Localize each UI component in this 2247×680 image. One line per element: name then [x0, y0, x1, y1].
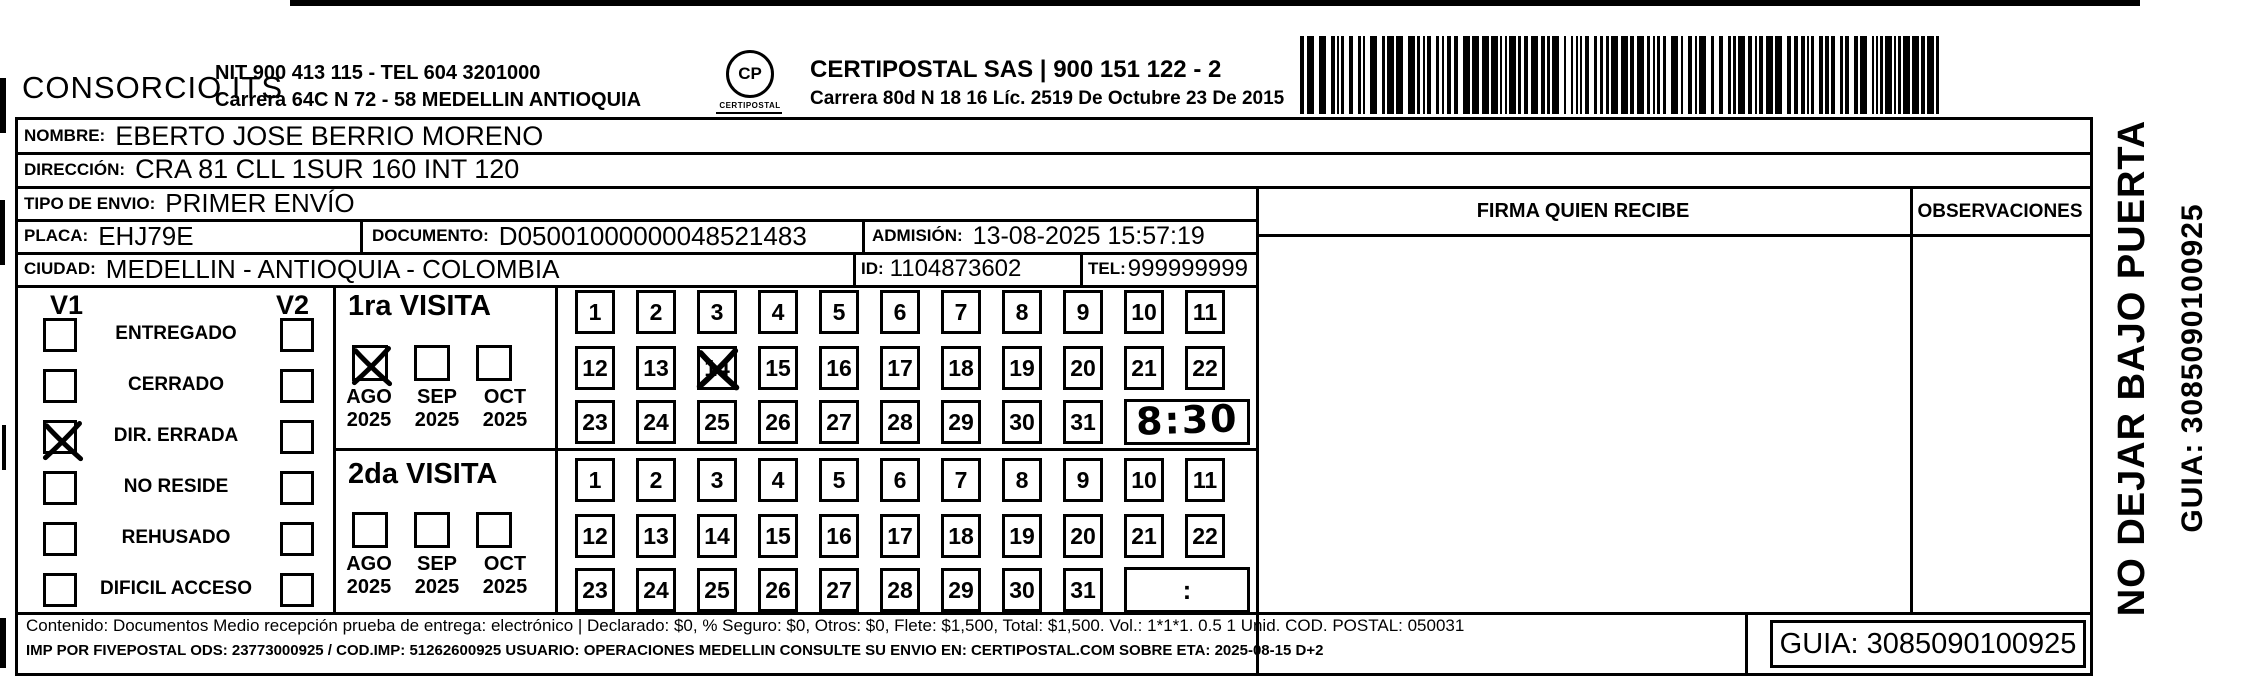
visit1-time-box: 8:30	[1124, 399, 1250, 445]
day-cell-28: 28	[880, 400, 920, 444]
v1-checkbox	[43, 573, 77, 607]
day-cell-22: 22	[1185, 514, 1225, 558]
time-colon: :	[1183, 575, 1192, 606]
grid-line	[18, 285, 1256, 288]
ciudad-label: CIUDAD:	[24, 259, 96, 279]
day-cell-12: 12	[575, 514, 615, 558]
day-cell-3: 3	[697, 458, 737, 502]
month-checkbox-sep	[414, 512, 450, 548]
month-label: AGO	[340, 553, 398, 576]
admision-value: 13-08-2025 15:57:19	[973, 222, 1205, 251]
status-label: DIR. ERRADA	[76, 420, 276, 452]
day-cell-17: 17	[880, 514, 920, 558]
day-cell-9: 9	[1063, 290, 1103, 334]
day-cell-10: 10	[1124, 290, 1164, 334]
day-cell-2: 2	[636, 458, 676, 502]
visit2-time-box: :	[1124, 567, 1250, 613]
certipostal-block: CERTIPOSTAL SAS | 900 151 122 - 2 Carrer…	[810, 56, 1284, 110]
placa-value: EHJ79E	[98, 221, 193, 252]
tel-label: TEL:	[1088, 259, 1126, 279]
day-cell-8: 8	[1002, 458, 1042, 502]
grid-line	[1080, 252, 1083, 285]
v1-checkbox	[43, 369, 77, 403]
month-checkbox-ago	[352, 512, 388, 548]
logo-tagline-line	[716, 112, 782, 114]
scanned-waybill: CONSORCIO ITS NIT 900 413 115 - TEL 604 …	[0, 0, 2247, 680]
handwritten-time: 8:30	[1135, 396, 1239, 444]
barcode	[1300, 36, 1948, 114]
footer-imp-line: IMP POR FIVEPOSTAL ODS: 23773000925 / CO…	[26, 642, 1323, 659]
grid-line	[1745, 612, 1748, 673]
scan-artifact	[0, 618, 6, 668]
status-label: DIFICIL ACCESO	[76, 573, 276, 605]
month-year: 2025	[408, 576, 466, 599]
v1-checkbox	[43, 420, 77, 454]
id-value: 1104873602	[890, 255, 1022, 283]
side-rotated-text: NO DEJAR BAJO PUERTA GUIA: 3085090100925	[2100, 113, 2230, 623]
visit2-month-checkboxes	[352, 512, 512, 548]
day-cell-4: 4	[758, 458, 798, 502]
nombre-label: NOMBRE:	[24, 126, 105, 146]
grid-line	[333, 285, 336, 612]
scan-artifact	[2, 425, 6, 470]
day-cell-19: 19	[1002, 514, 1042, 558]
day-cell-19: 19	[1002, 346, 1042, 390]
nombre-value: EBERTO JOSE BERRIO MORENO	[115, 121, 543, 152]
placa-label: PLACA:	[24, 226, 88, 246]
month-label: OCT	[476, 553, 534, 576]
form-box: NOMBRE: EBERTO JOSE BERRIO MORENO DIRECC…	[15, 117, 2093, 676]
visit2-month-labels: AGOSEPOCT	[340, 553, 534, 576]
day-cell-12: 12	[575, 346, 615, 390]
status-row-no-reside: NO RESIDE	[18, 471, 333, 505]
v2-checkbox	[280, 471, 314, 505]
day-row: 232425262728293031:	[575, 568, 1250, 613]
v2-checkbox	[280, 420, 314, 454]
day-cell-9: 9	[1063, 458, 1103, 502]
tel-cell: TEL: 999999999	[1088, 253, 1248, 285]
certipostal-name: CERTIPOSTAL SAS | 900 151 122 - 2	[810, 56, 1284, 84]
handwritten-x-mark	[350, 343, 394, 387]
status-row-dificil-acceso: DIFICIL ACCESO	[18, 573, 333, 607]
day-cell-26: 26	[758, 568, 798, 612]
tipo-envio-row: TIPO DE ENVIO: PRIMER ENVÍO	[24, 188, 355, 219]
day-row: 2324252627282930318:30	[575, 400, 1250, 445]
day-cell-6: 6	[880, 290, 920, 334]
v1-checkbox	[43, 318, 77, 352]
day-cell-5: 5	[819, 290, 859, 334]
v1-checkbox	[43, 522, 77, 556]
v2-checkbox	[280, 318, 314, 352]
day-cell-18: 18	[941, 346, 981, 390]
day-cell-8: 8	[1002, 290, 1042, 334]
grid-line	[1910, 189, 1913, 612]
day-row: 1213141516171819202122	[575, 514, 1225, 558]
grid-line	[862, 219, 865, 252]
grid-line	[555, 285, 558, 612]
visit1-title: 1ra VISITA	[348, 290, 491, 323]
day-cell-2: 2	[636, 290, 676, 334]
day-cell-15: 15	[758, 514, 798, 558]
day-cell-24: 24	[636, 568, 676, 612]
scan-artifact	[0, 78, 6, 133]
month-checkbox-sep	[414, 345, 450, 381]
day-cell-27: 27	[819, 568, 859, 612]
grid-line	[853, 252, 856, 285]
admision-cell: ADMISIÓN: 13-08-2025 15:57:19	[872, 220, 1205, 252]
documento-cell: DOCUMENTO: D05001000000048521483	[372, 220, 807, 252]
day-cell-16: 16	[819, 346, 859, 390]
day-cell-24: 24	[636, 400, 676, 444]
status-row-dir-errada: DIR. ERRADA	[18, 420, 333, 454]
month-label: SEP	[408, 553, 466, 576]
certipostal-address: Carrera 80d N 18 16 Líc. 2519 De Octubre…	[810, 88, 1284, 110]
day-cell-13: 13	[636, 346, 676, 390]
company-address-line: Carrera 64C N 72 - 58 MEDELLIN ANTIOQUIA	[215, 87, 641, 114]
day-cell-21: 21	[1124, 346, 1164, 390]
day-cell-29: 29	[941, 400, 981, 444]
status-row-cerrado: CERRADO	[18, 369, 333, 403]
v2-column-header: V2	[276, 290, 309, 321]
month-year: 2025	[476, 576, 534, 599]
status-label: CERRADO	[76, 369, 276, 401]
handwritten-x-mark	[695, 343, 741, 393]
tel-value: 999999999	[1128, 255, 1248, 283]
day-cell-11: 11	[1185, 290, 1225, 334]
day-cell-23: 23	[575, 568, 615, 612]
day-cell-7: 7	[941, 290, 981, 334]
day-cell-23: 23	[575, 400, 615, 444]
tipo-envio-label: TIPO DE ENVIO:	[24, 194, 155, 214]
day-cell-25: 25	[697, 400, 737, 444]
day-cell-25: 25	[697, 568, 737, 612]
scan-artifact	[0, 200, 5, 265]
day-cell-21: 21	[1124, 514, 1164, 558]
ciudad-cell: CIUDAD: MEDELLIN - ANTIOQUIA - COLOMBIA	[24, 253, 559, 285]
id-label: ID:	[861, 259, 884, 279]
day-cell-17: 17	[880, 346, 920, 390]
month-label: AGO	[340, 386, 398, 409]
month-checkbox-ago	[352, 345, 388, 381]
day-cell-10: 10	[1124, 458, 1164, 502]
direccion-value: CRA 81 CLL 1SUR 160 INT 120	[135, 154, 519, 185]
day-cell-14: 14	[697, 514, 737, 558]
day-cell-20: 20	[1063, 514, 1103, 558]
day-cell-13: 13	[636, 514, 676, 558]
v1-column-header: V1	[50, 290, 83, 321]
placa-cell: PLACA: EHJ79E	[24, 220, 194, 252]
top-border-line	[290, 0, 2140, 6]
grid-line	[1256, 189, 1259, 673]
v2-checkbox	[280, 522, 314, 556]
observaciones-column-header: OBSERVACIONES	[1910, 189, 2090, 234]
day-cell-4: 4	[758, 290, 798, 334]
logo-caption: CERTIPOSTAL	[706, 101, 794, 110]
grid-line	[1256, 234, 2090, 237]
firma-column-header: FIRMA QUIEN RECIBE	[1256, 189, 1910, 234]
day-cell-5: 5	[819, 458, 859, 502]
direccion-label: DIRECCIÓN:	[24, 160, 125, 180]
status-label: NO RESIDE	[76, 471, 276, 503]
v2-checkbox	[280, 573, 314, 607]
day-cell-29: 29	[941, 568, 981, 612]
guia-number-box: GUIA: 3085090100925	[1770, 620, 2086, 668]
ciudad-value: MEDELLIN - ANTIOQUIA - COLOMBIA	[106, 254, 560, 285]
day-cell-31: 31	[1063, 568, 1103, 612]
day-cell-15: 15	[758, 346, 798, 390]
id-cell: ID: 1104873602	[861, 253, 1021, 285]
visit2-title: 2da VISITA	[348, 458, 497, 491]
direccion-row: DIRECCIÓN: CRA 81 CLL 1SUR 160 INT 120	[24, 153, 519, 186]
logo-mark: CP	[738, 64, 762, 84]
admision-label: ADMISIÓN:	[872, 226, 963, 246]
v1-checkbox	[43, 471, 77, 505]
certipostal-seal-icon: CP	[726, 50, 774, 98]
day-row: 1234567891011	[575, 290, 1225, 334]
status-row-rehusado: REHUSADO	[18, 522, 333, 556]
day-cell-22: 22	[1185, 346, 1225, 390]
documento-value: D05001000000048521483	[499, 221, 807, 252]
day-cell-28: 28	[880, 568, 920, 612]
day-row: 1213141516171819202122	[575, 346, 1225, 390]
tipo-envio-value: PRIMER ENVÍO	[165, 188, 354, 219]
day-cell-11: 11	[1185, 458, 1225, 502]
month-year: 2025	[340, 576, 398, 599]
visit1-month-labels: AGOSEPOCT	[340, 386, 534, 409]
status-label: REHUSADO	[76, 522, 276, 554]
month-year: 2025	[340, 409, 398, 432]
company-nit-line: NIT 900 413 115 - TEL 604 3201000	[215, 60, 641, 87]
day-cell-6: 6	[880, 458, 920, 502]
day-cell-20: 20	[1063, 346, 1103, 390]
grid-line	[360, 219, 363, 252]
day-cell-7: 7	[941, 458, 981, 502]
day-cell-31: 31	[1063, 400, 1103, 444]
month-checkbox-oct	[476, 345, 512, 381]
day-row: 1234567891011	[575, 458, 1225, 502]
day-cell-1: 1	[575, 458, 615, 502]
day-cell-26: 26	[758, 400, 798, 444]
day-cell-30: 30	[1002, 568, 1042, 612]
day-cell-16: 16	[819, 514, 859, 558]
day-cell-18: 18	[941, 514, 981, 558]
day-cell-14: 14	[697, 346, 737, 390]
nombre-row: NOMBRE: EBERTO JOSE BERRIO MORENO	[24, 120, 543, 152]
day-cell-3: 3	[697, 290, 737, 334]
visit2-month-years: 202520252025	[340, 576, 534, 599]
visit1-month-checkboxes	[352, 345, 512, 381]
day-cell-27: 27	[819, 400, 859, 444]
no-dejar-bajo-puerta-text: NO DEJAR BAJO PUERTA	[2100, 113, 2164, 623]
company-contact-block: NIT 900 413 115 - TEL 604 3201000 Carrer…	[215, 60, 641, 114]
footer-content-line: Contenido: Documentos Medio recepción pr…	[26, 616, 1464, 636]
status-row-entregado: ENTREGADO	[18, 318, 333, 352]
visit1-month-years: 202520252025	[340, 409, 534, 432]
month-label: OCT	[476, 386, 534, 409]
day-cell-1: 1	[575, 290, 615, 334]
v2-checkbox	[280, 369, 314, 403]
month-checkbox-oct	[476, 512, 512, 548]
month-year: 2025	[476, 409, 534, 432]
side-guia-text: GUIA: 3085090100925	[2164, 113, 2222, 623]
day-cell-30: 30	[1002, 400, 1042, 444]
month-label: SEP	[408, 386, 466, 409]
month-year: 2025	[408, 409, 466, 432]
documento-label: DOCUMENTO:	[372, 226, 489, 246]
grid-line	[333, 448, 1256, 451]
status-label: ENTREGADO	[76, 318, 276, 350]
